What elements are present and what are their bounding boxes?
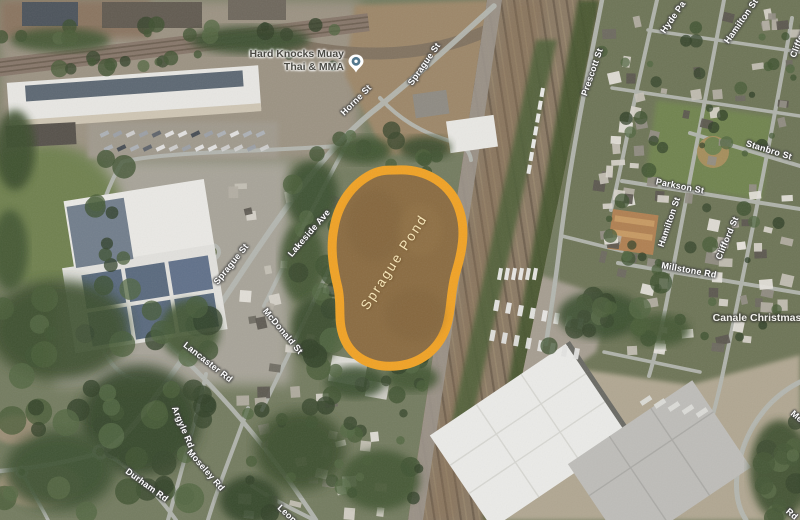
satellite-imagery bbox=[0, 0, 800, 520]
noise-overlay bbox=[0, 0, 800, 520]
map-canvas[interactable]: Sprague Pond Hard Knocks Muay Thai & MMA… bbox=[0, 0, 800, 520]
